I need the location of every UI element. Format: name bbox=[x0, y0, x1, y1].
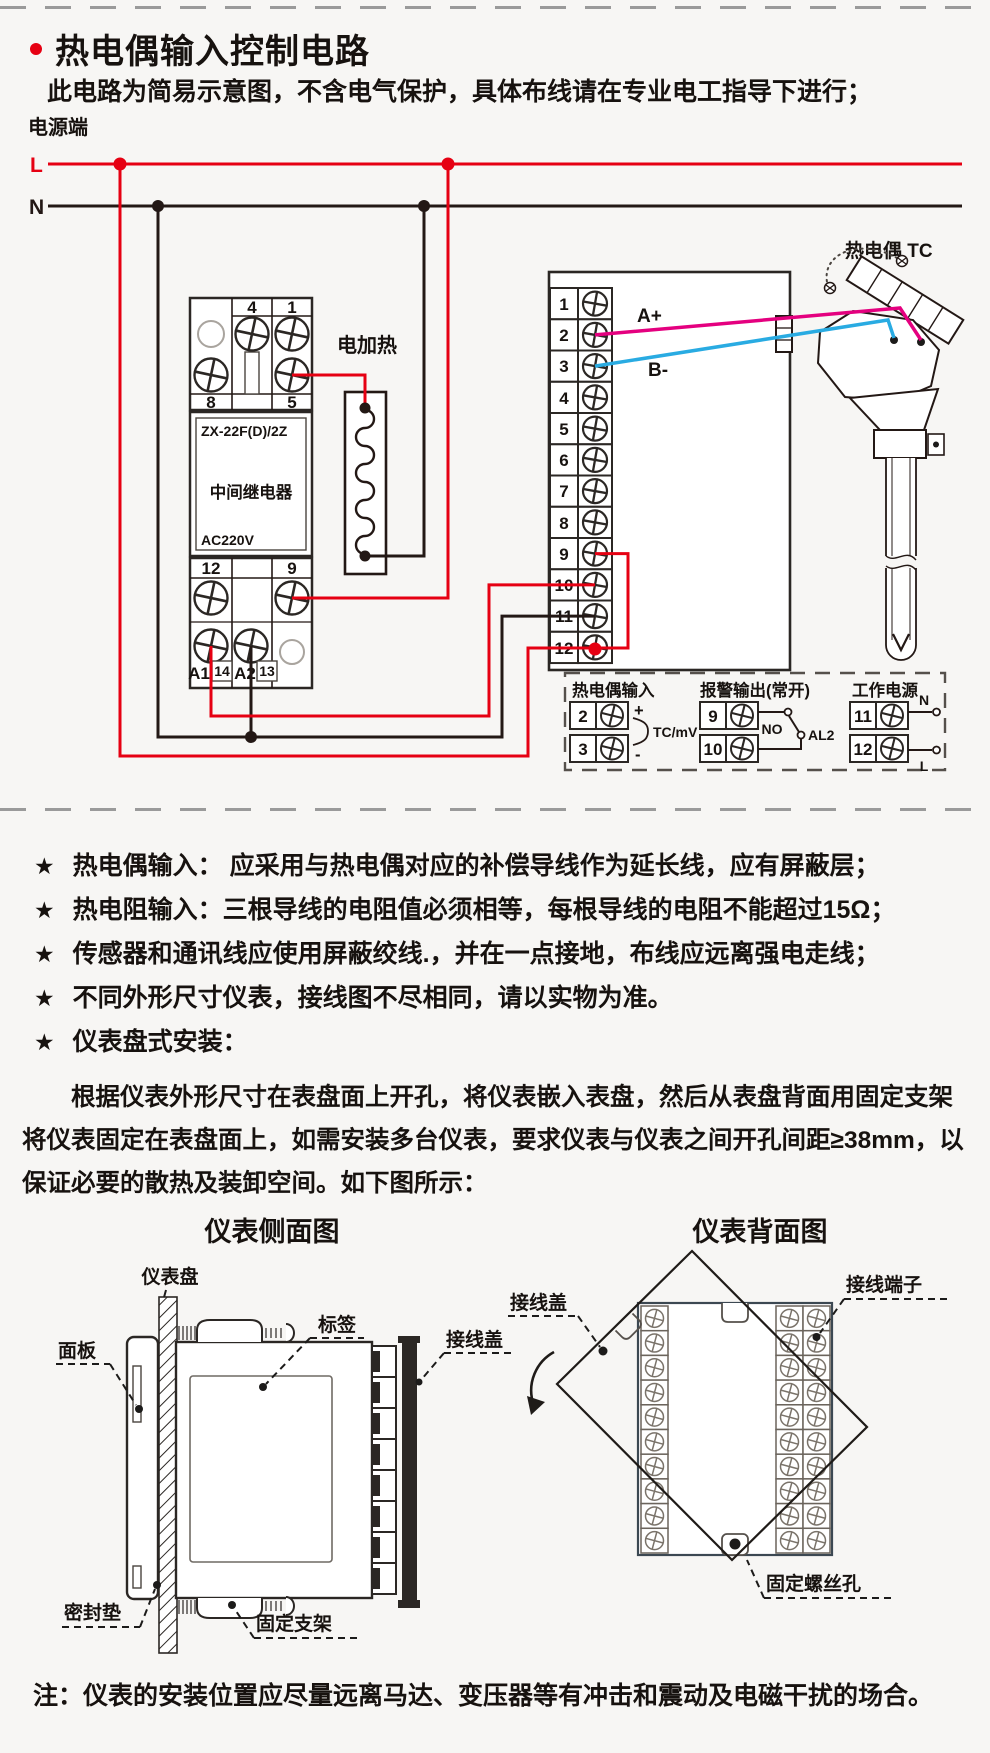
relay-pin-label: 1 bbox=[287, 298, 296, 317]
panel-label: 仪表盘 bbox=[140, 1265, 198, 1288]
middle-dashed-divider bbox=[0, 808, 990, 811]
circuit-diagram: 电源端 L N 4 1 8 5 ZX-22F(D)/2Z 中间继电器 AC bbox=[0, 115, 990, 810]
rear-terminal-strip bbox=[372, 1346, 396, 1594]
section-header: 热电偶输入控制电路 bbox=[30, 24, 370, 73]
svg-text:9: 9 bbox=[559, 545, 568, 564]
side-view-diagram: 仪表侧面图 bbox=[56, 1217, 512, 1653]
relay-hole-icon bbox=[198, 321, 224, 347]
note-text: 不同外形尺寸仪表，接线图不尽相同，请以实物为准。 bbox=[73, 978, 673, 1014]
bottom-note: 注：仪表的安装位置应尽量远离马达、变压器等有冲击和震动及电磁干扰的场合。 bbox=[33, 1676, 933, 1712]
relay-pin-label: 4 bbox=[247, 298, 257, 317]
cap-screw-icon bbox=[825, 283, 836, 294]
note-item: ★传感器和通讯线应使用屏蔽绞线.，并在一点接地，布线应远离强电走线； bbox=[34, 934, 895, 978]
contact-icon bbox=[933, 747, 940, 754]
red-bullet-icon bbox=[30, 43, 42, 55]
svg-text:1: 1 bbox=[559, 295, 568, 314]
top-notch bbox=[722, 1303, 748, 1322]
svg-text:2: 2 bbox=[578, 707, 587, 726]
legend-tc-input: 热电偶输入 2 3 + - TC/mV bbox=[570, 680, 698, 764]
relay-pin-label: 5 bbox=[287, 393, 296, 412]
top-bracket bbox=[179, 1320, 294, 1342]
manual-page: 热电偶输入控制电路 此电路为简易示意图，不含电气保护，具体布线请在专业电工指导下… bbox=[0, 0, 990, 1753]
svg-text:2: 2 bbox=[559, 326, 568, 345]
cover-label-side: 接线盖 bbox=[446, 1328, 503, 1351]
svg-text:3: 3 bbox=[559, 357, 568, 376]
contact-icon bbox=[785, 709, 792, 716]
rotate-arrow-icon bbox=[531, 1352, 554, 1403]
terminal-label: 接线端子 bbox=[846, 1273, 922, 1296]
front-label: 面板 bbox=[58, 1339, 97, 1362]
relay-pin-label: 9 bbox=[287, 559, 296, 578]
legend-working-power: 工作电源 11 12 N L bbox=[850, 680, 940, 774]
relay-voltage: AC220V bbox=[201, 532, 255, 548]
relay-pin-label: 14 bbox=[214, 663, 230, 679]
note-item: ★热电阻输入：三根导线的电阻值必须相等，每根导线的电阻不能超过15Ω； bbox=[34, 890, 895, 934]
contact-icon bbox=[798, 732, 805, 739]
relay-module: 4 1 8 5 ZX-22F(D)/2Z 中间继电器 AC220V 12 9 bbox=[188, 298, 312, 688]
note-item: ★不同外形尺寸仪表，接线图不尽相同，请以实物为准。 bbox=[34, 978, 895, 1022]
svg-text:工作电源: 工作电源 bbox=[852, 680, 919, 700]
screw-hole-label: 固定螺丝孔 bbox=[766, 1572, 861, 1595]
svg-text:7: 7 bbox=[559, 482, 568, 501]
svg-text:+: + bbox=[634, 702, 644, 720]
note-text: 仪表盘式安装： bbox=[73, 1022, 248, 1058]
install-paragraph: 根据仪表外形尺寸在表盘面上开孔，将仪表嵌入表盘，然后从表盘背面用固定支架将仪表固… bbox=[22, 1076, 968, 1205]
svg-text:-: - bbox=[635, 746, 641, 764]
relay-name: 中间继电器 bbox=[210, 482, 293, 502]
terminal-cover-bar bbox=[402, 1342, 417, 1604]
note-text: 热电阻输入：三根导线的电阻值必须相等，每根导线的电阻不能超过15Ω； bbox=[73, 890, 896, 926]
line-l-label: L bbox=[30, 154, 43, 177]
panel-section bbox=[159, 1297, 177, 1653]
cap-screw-icon bbox=[897, 256, 908, 267]
relay-pin-label: A2 bbox=[234, 664, 256, 683]
relay-pin-label: 13 bbox=[259, 663, 275, 679]
note-item: ★热电偶输入： 应采用与热电偶对应的补偿导线作为延长线，应有屏蔽层； bbox=[34, 846, 895, 890]
switch-lever-icon bbox=[789, 716, 799, 732]
svg-text:4: 4 bbox=[559, 389, 569, 408]
terminal-legend: 热电偶输入 2 3 + - TC/mV 报警输出(常开) 9 10 bbox=[565, 673, 945, 774]
side-view-title: 仪表侧面图 bbox=[204, 1217, 340, 1247]
svg-text:NO: NO bbox=[762, 721, 783, 737]
svg-text:热电偶输入: 热电偶输入 bbox=[572, 680, 655, 700]
svg-text:L: L bbox=[920, 758, 929, 774]
top-dashed-divider bbox=[0, 6, 990, 9]
star-icon: ★ bbox=[34, 1029, 55, 1056]
label-area bbox=[190, 1376, 332, 1562]
svg-text:N: N bbox=[919, 692, 929, 708]
back-view-diagram: 仪表背面图 接线盖 bbox=[508, 1217, 950, 1598]
note-list: ★热电偶输入： 应采用与热电偶对应的补偿导线作为延长线，应有屏蔽层； ★热电阻输… bbox=[34, 846, 895, 1066]
installation-diagrams: 仪表侧面图 bbox=[0, 1195, 990, 1660]
star-icon: ★ bbox=[34, 897, 55, 924]
star-icon: ★ bbox=[34, 941, 55, 968]
wire-b-label: B- bbox=[648, 360, 668, 381]
front-bezel bbox=[127, 1337, 158, 1599]
svg-text:8: 8 bbox=[559, 514, 568, 533]
tag-label: 标签 bbox=[318, 1313, 357, 1336]
svg-text:AL2: AL2 bbox=[808, 727, 835, 743]
svg-text:5: 5 bbox=[559, 420, 568, 439]
power-terminal-label: 电源端 bbox=[28, 116, 88, 139]
svg-text:3: 3 bbox=[578, 740, 587, 759]
legend-alarm-output: 报警输出(常开) 9 10 NO AL2 bbox=[700, 680, 835, 762]
note-text: 热电偶输入： 应采用与热电偶对应的补偿导线作为延长线，应有屏蔽层； bbox=[73, 846, 880, 882]
star-icon: ★ bbox=[34, 985, 55, 1012]
subtitle: 此电路为简易示意图，不含电气保护，具体布线请在专业电工指导下进行； bbox=[47, 72, 872, 108]
svg-text:报警输出(常开): 报警输出(常开) bbox=[700, 680, 810, 700]
relay-model: ZX-22F(D)/2Z bbox=[201, 423, 288, 439]
page-title: 热电偶输入控制电路 bbox=[55, 24, 370, 73]
wire-a-label: A+ bbox=[637, 306, 662, 327]
contact-icon bbox=[933, 709, 940, 716]
tc-label: 热电偶 TC bbox=[845, 239, 933, 262]
relay-hole-icon bbox=[280, 640, 304, 664]
relay-pin-label: A1 bbox=[188, 664, 210, 683]
svg-text:6: 6 bbox=[559, 451, 568, 470]
star-icon: ★ bbox=[34, 853, 55, 880]
heater-label: 电加热 bbox=[337, 334, 397, 357]
terminal-rows: 1 2 3 4 5 6 7 8 9 10 11 12 bbox=[550, 288, 612, 663]
heater: 电加热 bbox=[337, 334, 397, 574]
thermocouple: 热电偶 TC bbox=[776, 239, 963, 660]
tc-collar bbox=[874, 430, 926, 458]
svg-text:10: 10 bbox=[704, 740, 723, 759]
svg-text:TC/mV: TC/mV bbox=[653, 724, 698, 740]
relay-pin-label: 8 bbox=[206, 393, 215, 412]
note-item: ★仪表盘式安装： bbox=[34, 1022, 895, 1066]
svg-text:11: 11 bbox=[854, 707, 872, 726]
relay-pin-label: 12 bbox=[202, 559, 221, 578]
cover-label-back: 接线盖 bbox=[510, 1291, 567, 1314]
bracket-label: 固定支架 bbox=[256, 1612, 332, 1635]
note-text: 传感器和通讯线应使用屏蔽绞线.，并在一点接地，布线应远离强电走线； bbox=[73, 934, 880, 970]
svg-text:9: 9 bbox=[708, 707, 717, 726]
gasket-label: 密封垫 bbox=[64, 1601, 121, 1624]
instrument-terminal-block: 1 2 3 4 5 6 7 8 9 10 11 12 bbox=[549, 272, 790, 670]
back-view-title: 仪表背面图 bbox=[692, 1217, 828, 1247]
svg-text:12: 12 bbox=[854, 740, 873, 759]
line-n-label: N bbox=[29, 196, 44, 219]
